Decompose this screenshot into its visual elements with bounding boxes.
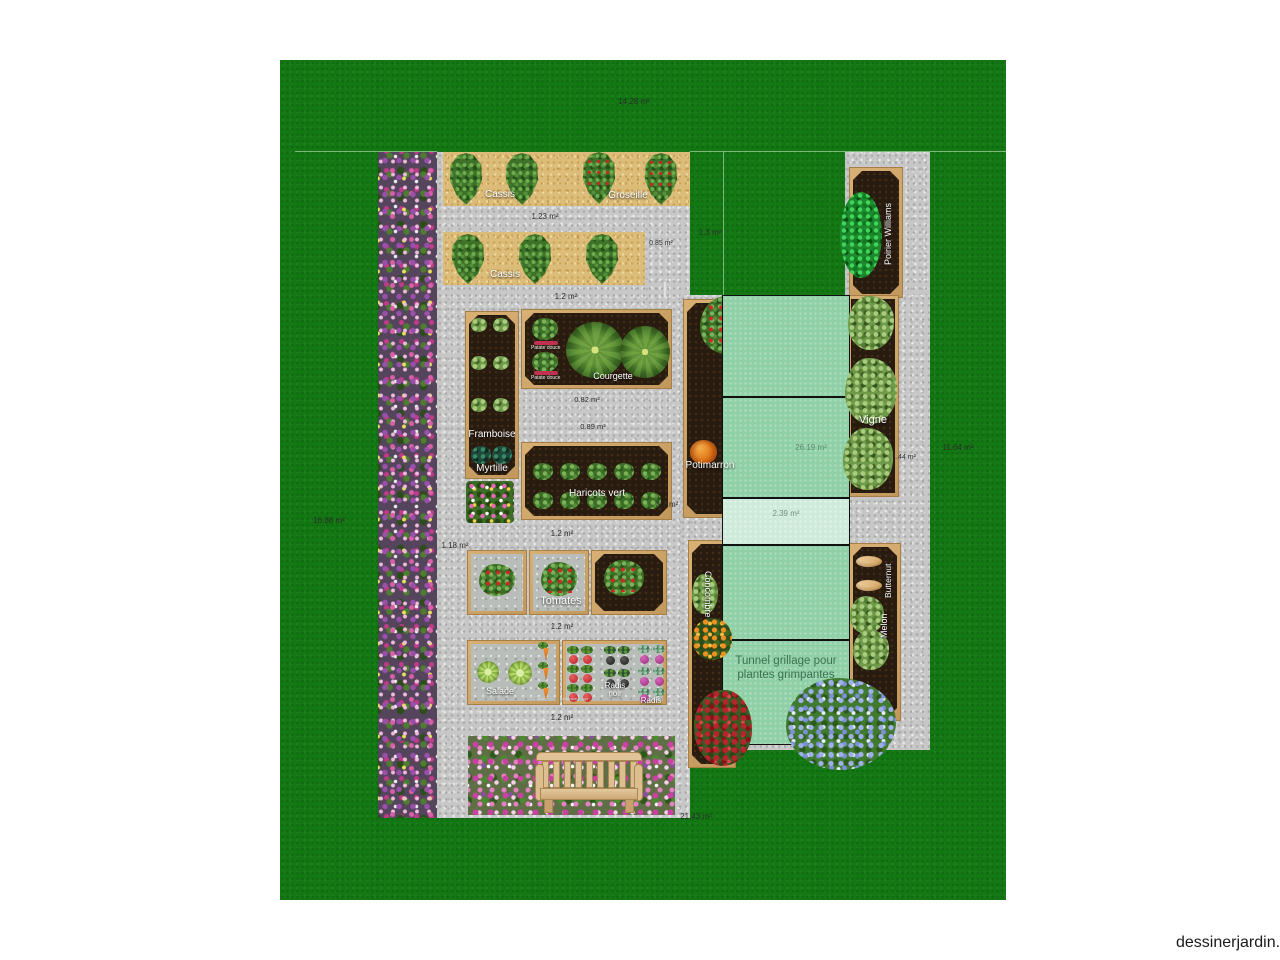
myrtille-plant-icon[interactable] (492, 446, 512, 464)
area-label: 26.19 m² (784, 443, 838, 452)
area-label: 1.2 m² (544, 529, 580, 538)
radis-plant-icon[interactable] (583, 674, 592, 683)
area-label: 21,43 m² (668, 812, 724, 821)
haricot-plant-icon[interactable] (614, 463, 634, 480)
framboise-plant-icon[interactable] (493, 356, 509, 370)
bench-slat (575, 761, 582, 788)
area-label: 0.89 m² (572, 422, 614, 431)
garden-bench[interactable] (536, 752, 642, 814)
radis-noir-leaf-icon (618, 669, 630, 677)
haricot-plant-icon[interactable] (560, 463, 580, 480)
radis-plant-icon[interactable] (569, 674, 578, 683)
area-label: 11.64 m² (932, 443, 984, 452)
area-label: 0.82 m² (566, 395, 608, 404)
seed-packet-label: Patate douce (531, 346, 560, 351)
myrtille-plant-icon[interactable] (471, 446, 491, 464)
radis-leaf-icon (567, 646, 579, 654)
bed-label-concombre: Concombre (703, 548, 712, 640)
site-watermark: dessinerjardin.fr (1176, 934, 1280, 952)
area-label: 1.18 m² (436, 541, 474, 550)
framboise-plant-icon[interactable] (493, 398, 509, 412)
bed-label-betterave: Betterave rouge (560, 697, 588, 701)
red-flowers-icon[interactable] (694, 690, 752, 766)
bed-label-melon: Melon (880, 600, 889, 652)
framboise-plant-icon[interactable] (471, 318, 487, 332)
flower-border[interactable] (378, 152, 437, 818)
area-label: 14.28 m² (606, 97, 662, 106)
bench-slat (553, 761, 560, 788)
carotte-leaf-icon (538, 642, 548, 649)
salade-plant-icon[interactable] (508, 661, 532, 685)
tomate-plant-icon[interactable] (604, 560, 644, 596)
area-label: 1,3 m² (692, 228, 728, 237)
radis-leaf-icon (581, 684, 593, 692)
radis-noir-leaf-icon (618, 646, 630, 654)
radis-leaf-icon (567, 665, 579, 673)
bench-leg (544, 799, 553, 813)
tunnel-section (722, 295, 850, 397)
bench-seat (540, 788, 638, 800)
tunnel-section (722, 545, 850, 640)
carotte-leaf-icon (538, 662, 548, 669)
poirier-tree-icon[interactable] (840, 192, 882, 278)
capucine-flowers-icon[interactable] (692, 618, 732, 660)
bed-label-courgette: Courgette (582, 371, 644, 382)
tomate-plant-icon[interactable] (541, 562, 577, 596)
bed-label-tomates: Tomates (538, 596, 584, 607)
seed-packet-label: Patate douce (531, 376, 560, 381)
measure-tick (664, 282, 666, 298)
area-label: 16.88 m² (303, 516, 355, 525)
tunnel-strip (722, 498, 850, 545)
radis-rose-leaf-icon (638, 645, 650, 653)
bench-slat (608, 761, 615, 788)
bed-label-myrtille: Myrtille (468, 463, 516, 474)
area-label: 1.44 m² (886, 453, 922, 462)
bed-label-cassis-2: Cassis (483, 269, 527, 280)
radis-rose-leaf-icon (653, 667, 665, 675)
garden-plan-canvas: 14.28 m² 11.64 m² 16.88 m² 1,3 m² 21,43 … (0, 0, 1280, 960)
patate-douce-plant-icon[interactable] (532, 318, 558, 340)
radis-rose-leaf-icon (638, 667, 650, 675)
bed-label-radis: Radis (636, 695, 666, 706)
courgette-plant-icon[interactable] (566, 322, 624, 378)
area-label: 0.85 m² (643, 239, 679, 248)
carotte-leaf-icon (538, 682, 548, 689)
bed-label-poirier: Poirier Williams (884, 180, 893, 288)
radis-leaf-icon (581, 665, 593, 673)
radis-rose-plant-icon[interactable] (640, 677, 649, 686)
radis-leaf-icon (581, 646, 593, 654)
radis-plant-icon[interactable] (569, 655, 578, 664)
framboise-plant-icon[interactable] (471, 356, 487, 370)
bed-label-haricots: Haricots vert (549, 488, 645, 499)
bench-backrail (536, 752, 642, 761)
patate-douce-plant-icon[interactable] (532, 352, 558, 372)
bed-label-salade: Salade (478, 686, 522, 697)
radis-rose-plant-icon[interactable] (640, 655, 649, 664)
blue-flowers-icon[interactable] (786, 678, 896, 770)
area-label: 1.23 m² (520, 212, 570, 221)
bed-label-vigne: Vigne (850, 415, 896, 426)
area-label: 2.39 m² (722, 509, 850, 518)
haricot-plant-icon[interactable] (533, 463, 553, 480)
framboise-plant-icon[interactable] (471, 398, 487, 412)
salade-plant-icon[interactable] (477, 661, 499, 683)
area-label: 1.2 m² (544, 622, 580, 631)
parcel-line (690, 151, 1006, 152)
bed-label-groseille: Groseille (598, 190, 658, 201)
bed-label-potimarron: Potimarron (682, 460, 738, 471)
bench-slat (586, 761, 593, 788)
area-label: 1.2 m² (548, 292, 584, 301)
bed-label-radis-noir: Radis noir (600, 682, 630, 698)
area-label: 1.2 m² (544, 713, 580, 722)
tunnel-caption: Tunnel grillage pour plantes grimpantes (726, 654, 846, 682)
bed-label-carotte: Carotte (534, 697, 547, 701)
radis-rose-plant-icon[interactable] (655, 655, 664, 664)
parcel-line (723, 152, 724, 295)
radis-noir-leaf-icon (604, 669, 616, 677)
radis-noir-plant-icon[interactable] (606, 656, 615, 665)
radis-noir-leaf-icon (604, 646, 616, 654)
radis-rose-leaf-icon (653, 645, 665, 653)
bed-label-framboise: Framboise (466, 429, 518, 440)
area-label: 3.7 m² (650, 500, 684, 509)
bed-label-cassis: Cassis (478, 189, 522, 200)
radis-rose-plant-icon[interactable] (655, 677, 664, 686)
haricot-plant-icon[interactable] (641, 463, 661, 480)
bench-slat (619, 761, 626, 788)
framboise-plant-icon[interactable] (493, 318, 509, 332)
bench-leg (625, 799, 634, 813)
bench-slat (597, 761, 604, 788)
bench-slat (564, 761, 571, 788)
haricot-plant-icon[interactable] (587, 463, 607, 480)
radis-plant-icon[interactable] (583, 655, 592, 664)
flowering-patch[interactable] (466, 481, 514, 523)
radis-noir-plant-icon[interactable] (620, 656, 629, 665)
tomate-plant-icon[interactable] (479, 564, 515, 596)
radis-leaf-icon (567, 684, 579, 692)
vigne-plant-icon[interactable] (848, 296, 894, 350)
